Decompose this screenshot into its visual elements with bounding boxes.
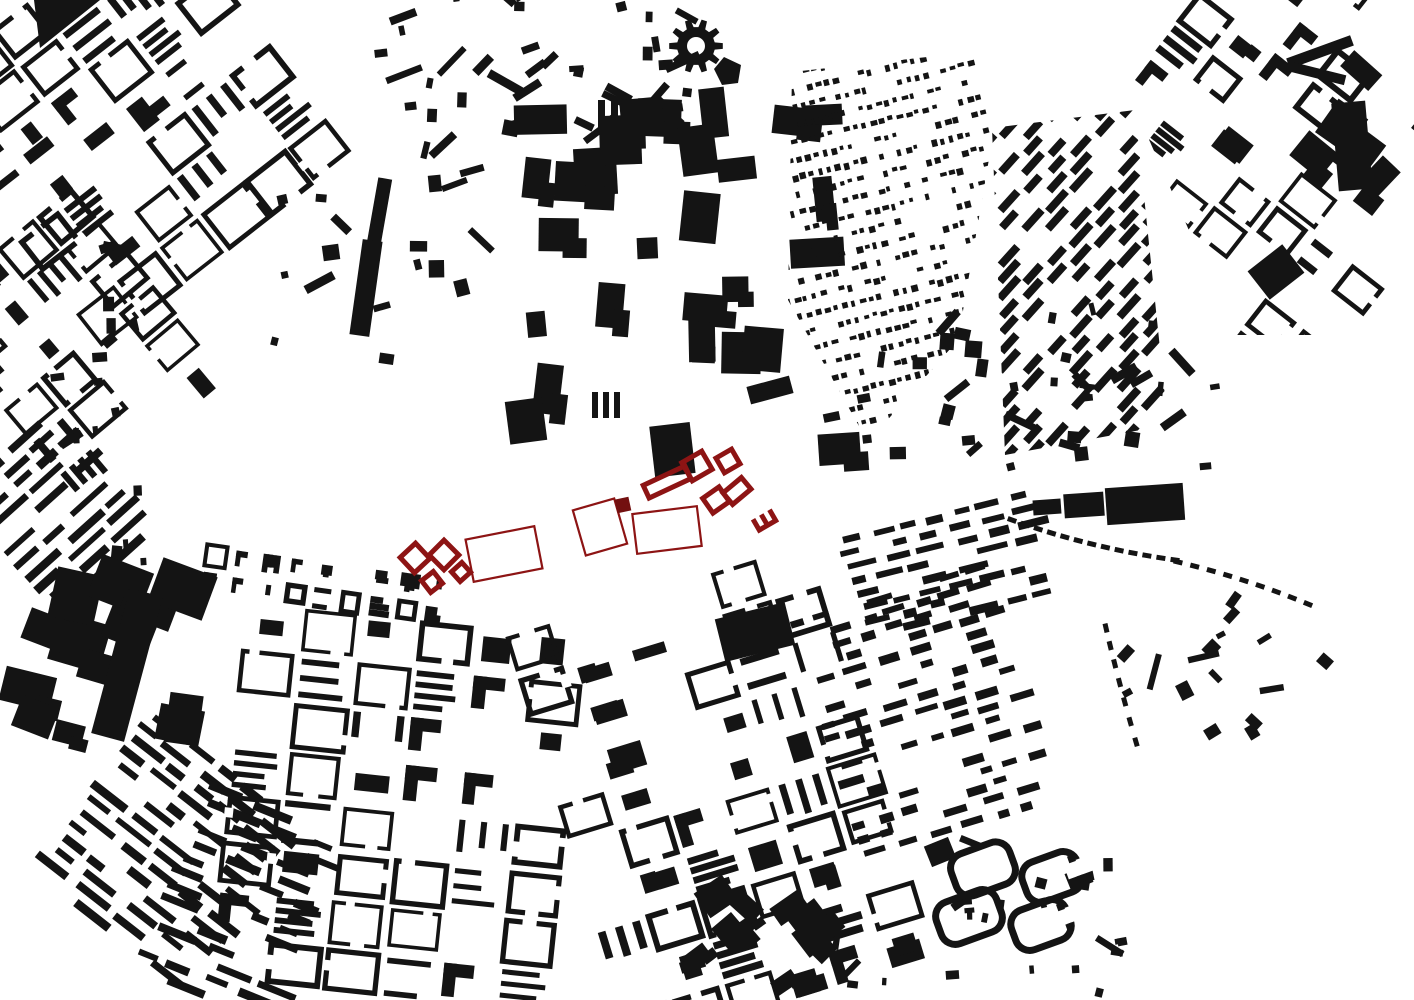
city-map-canvas (0, 0, 1414, 1000)
highlight-building-filled (615, 497, 632, 514)
figure-ground-map (0, 0, 1414, 1000)
